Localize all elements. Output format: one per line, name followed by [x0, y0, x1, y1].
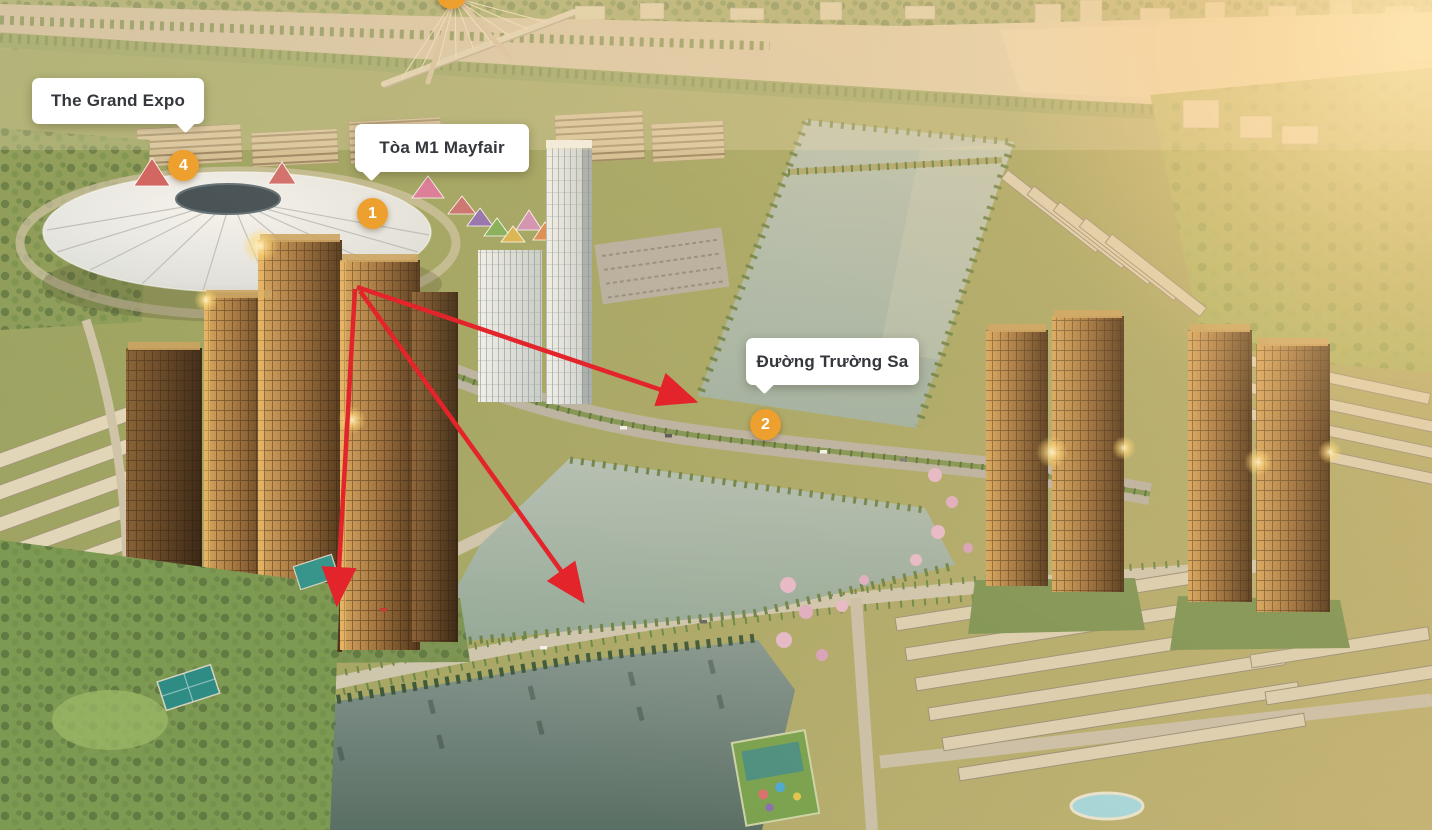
label-toa-m1-mayfair: Tòa M1 Mayfair: [355, 124, 529, 172]
label-duong-truong-sa: Đường Trường Sa: [746, 338, 919, 385]
scene-artwork: [0, 0, 1432, 830]
label-duong-truong-sa-text: Đường Trường Sa: [757, 352, 909, 372]
badge-4-number: 4: [179, 157, 188, 175]
badge-2: 2: [750, 409, 781, 440]
label-the-grand-expo: The Grand Expo: [32, 78, 204, 124]
label-the-grand-expo-text: The Grand Expo: [51, 91, 185, 111]
label-toa-m1-mayfair-text: Tòa M1 Mayfair: [379, 138, 505, 158]
badge-2-number: 2: [761, 416, 770, 434]
badge-1: 1: [357, 198, 388, 229]
aerial-masterplan-render: The Grand Expo Tòa M1 Mayfair Đường Trườ…: [0, 0, 1432, 830]
badge-1-number: 1: [368, 205, 377, 223]
badge-4: 4: [168, 150, 199, 181]
